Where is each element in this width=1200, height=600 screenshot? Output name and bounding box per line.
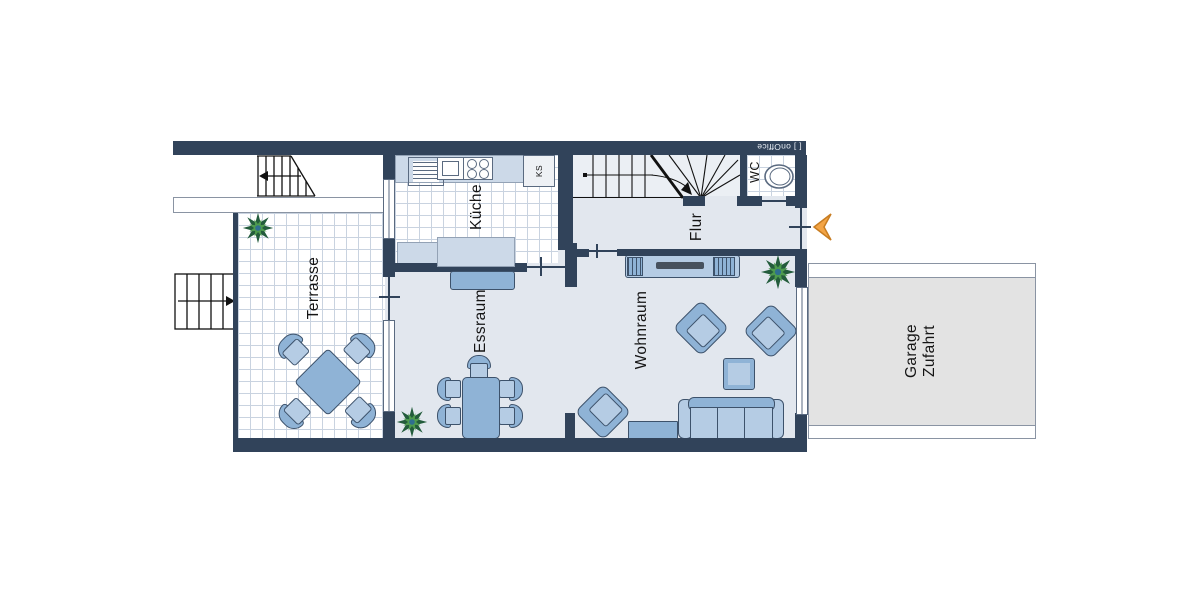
entrance-tick	[789, 226, 811, 228]
stair-stub-left	[683, 196, 705, 206]
fridge-label: KS	[534, 165, 544, 177]
upper-stairs-arrow	[259, 171, 268, 181]
room-label-wc: WC	[748, 161, 762, 183]
garage-label-line1: Garage	[903, 324, 921, 378]
plant-dining	[396, 406, 428, 438]
livingroom-window	[796, 287, 808, 415]
terrace-door-threshold	[388, 277, 390, 320]
dining-table	[462, 377, 500, 439]
stove-icon	[463, 157, 493, 180]
interior-stairs	[573, 155, 740, 198]
kitchen-cabinet-left	[397, 242, 438, 265]
kitchen-pass-tick	[540, 257, 542, 276]
dining-chair-right-2	[499, 403, 523, 429]
dining-chair-right-1	[499, 376, 523, 402]
kitchen-island	[437, 237, 515, 267]
wall-top: [ ] onOffice	[173, 141, 806, 155]
room-label-flur: Flur	[688, 213, 706, 241]
wc-side-wall	[740, 155, 747, 196]
terrace-door-tick	[379, 296, 400, 298]
dining-terrace-window	[383, 320, 395, 412]
walkway-strip	[173, 197, 386, 213]
terrace-side-wall	[233, 213, 238, 452]
wall-dining-hall-nub	[577, 249, 589, 257]
wc-corner-wall	[786, 196, 797, 206]
room-label-kueche: Küche	[468, 184, 486, 230]
entrance-threshold	[800, 208, 802, 250]
wall-dining-hall-stub	[565, 243, 577, 287]
wc-door-threshold	[762, 200, 788, 202]
dining-chair-left-2	[437, 403, 461, 429]
room-label-wohnraum: Wohnraum	[633, 291, 651, 370]
dining-sideboard	[450, 271, 515, 290]
plant-livingroom	[760, 254, 796, 290]
sink-icon	[437, 157, 464, 180]
entrance-arrow-icon	[812, 213, 833, 241]
wall-right-lower	[795, 413, 807, 438]
wall-kitchen-stair	[558, 155, 573, 250]
room-label-terrasse: Terrasse	[305, 257, 323, 320]
fridge: KS	[523, 155, 555, 187]
toilet-icon	[764, 164, 794, 189]
plant-terrace	[242, 212, 274, 244]
wall-bottom	[238, 438, 807, 452]
speaker-right	[713, 257, 735, 276]
tv-icon	[656, 262, 704, 269]
onoffice-logo: [ ] onOffice	[757, 142, 802, 152]
kitchen-pass-threshold	[527, 266, 565, 268]
floor-plan: Garage Zufahrt [ ] onOffice KS	[0, 0, 1200, 600]
stair-stub-right	[737, 196, 762, 206]
wall-left-lower	[383, 410, 395, 438]
sink-basin	[442, 161, 459, 176]
room-label-garage: Garage Zufahrt	[903, 324, 939, 378]
dining-chair-left-1	[437, 376, 461, 402]
exterior-stairs-lower	[174, 273, 237, 330]
garage-label-line2: Zufahrt	[921, 324, 939, 378]
hall-dining-tick	[596, 244, 598, 258]
room-label-essraum: Essraum	[472, 289, 490, 353]
dining-chair-top	[466, 355, 492, 379]
sofa-seat	[690, 407, 773, 439]
coffee-table	[723, 358, 755, 390]
exterior-stairs-upper	[257, 155, 317, 197]
wall-left-upper	[383, 155, 395, 179]
speaker-left	[627, 257, 643, 276]
sofa	[678, 397, 784, 438]
kitchen-window	[383, 179, 395, 239]
living-dining-stub	[565, 413, 575, 438]
